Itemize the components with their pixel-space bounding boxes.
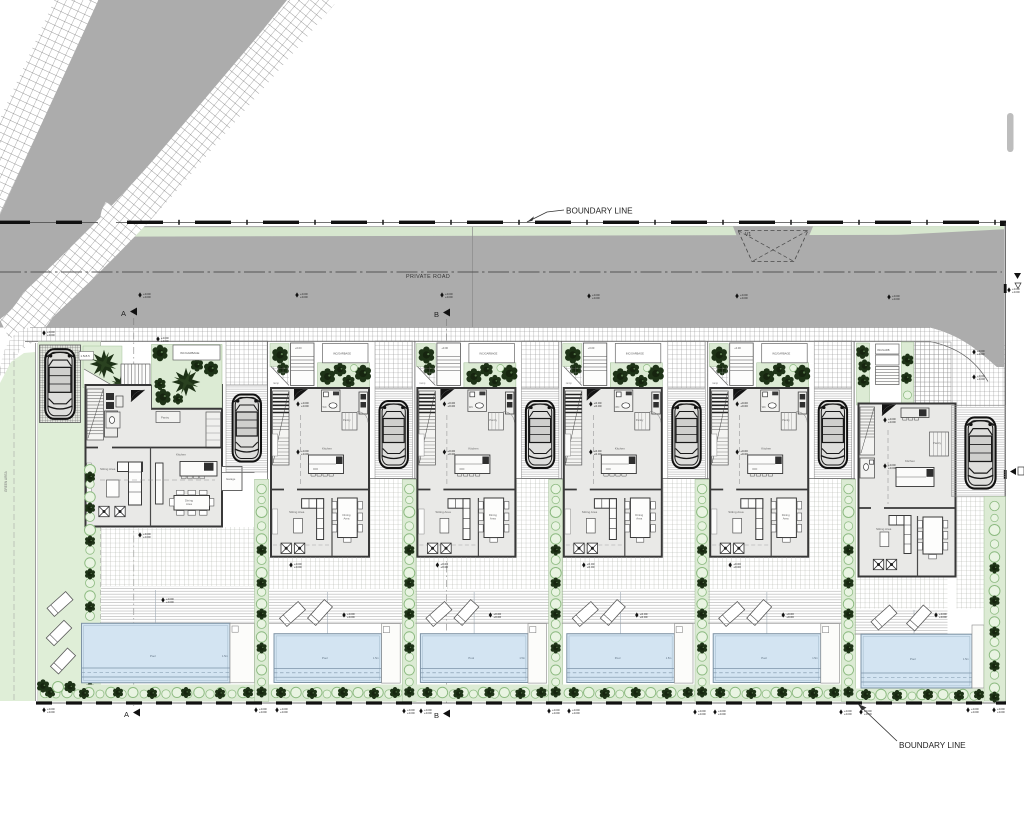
svg-text:INC/GARBAGE: INC/GARBAGE (180, 351, 200, 355)
svg-text:Sitting Area: Sitting Area (100, 467, 116, 471)
svg-text:B: B (434, 711, 439, 720)
svg-text:INC/GARB: INC/GARB (877, 348, 890, 352)
svg-text:Area: Area (186, 502, 192, 506)
svg-text:V1: V1 (745, 232, 751, 238)
svg-text:GREEN AREA: GREEN AREA (4, 470, 8, 492)
svg-text:Pool: Pool (150, 654, 156, 658)
svg-text:1.5m: 1.5m (222, 655, 228, 658)
svg-text:Kitchen: Kitchen (905, 459, 915, 463)
svg-text:1.5x5.5: 1.5x5.5 (81, 354, 91, 358)
svg-text:Kitchen: Kitchen (176, 453, 186, 457)
svg-text:B: B (434, 310, 439, 319)
svg-text:A: A (121, 309, 126, 318)
svg-text:Pool: Pool (910, 657, 916, 661)
svg-text:BOUNDARY LINE: BOUNDARY LINE (566, 207, 633, 216)
svg-text:1.5m: 1.5m (963, 658, 969, 661)
svg-text:Pantry: Pantry (161, 416, 170, 420)
svg-text:BOUNDARY LINE: BOUNDARY LINE (899, 741, 966, 750)
svg-text:Sitting Area: Sitting Area (876, 527, 892, 531)
svg-text:Garage: Garage (226, 477, 236, 481)
svg-text:Pantry: Pantry (933, 441, 942, 445)
svg-text:PRIVATE ROAD: PRIVATE ROAD (406, 274, 450, 280)
svg-text:A: A (124, 710, 129, 719)
